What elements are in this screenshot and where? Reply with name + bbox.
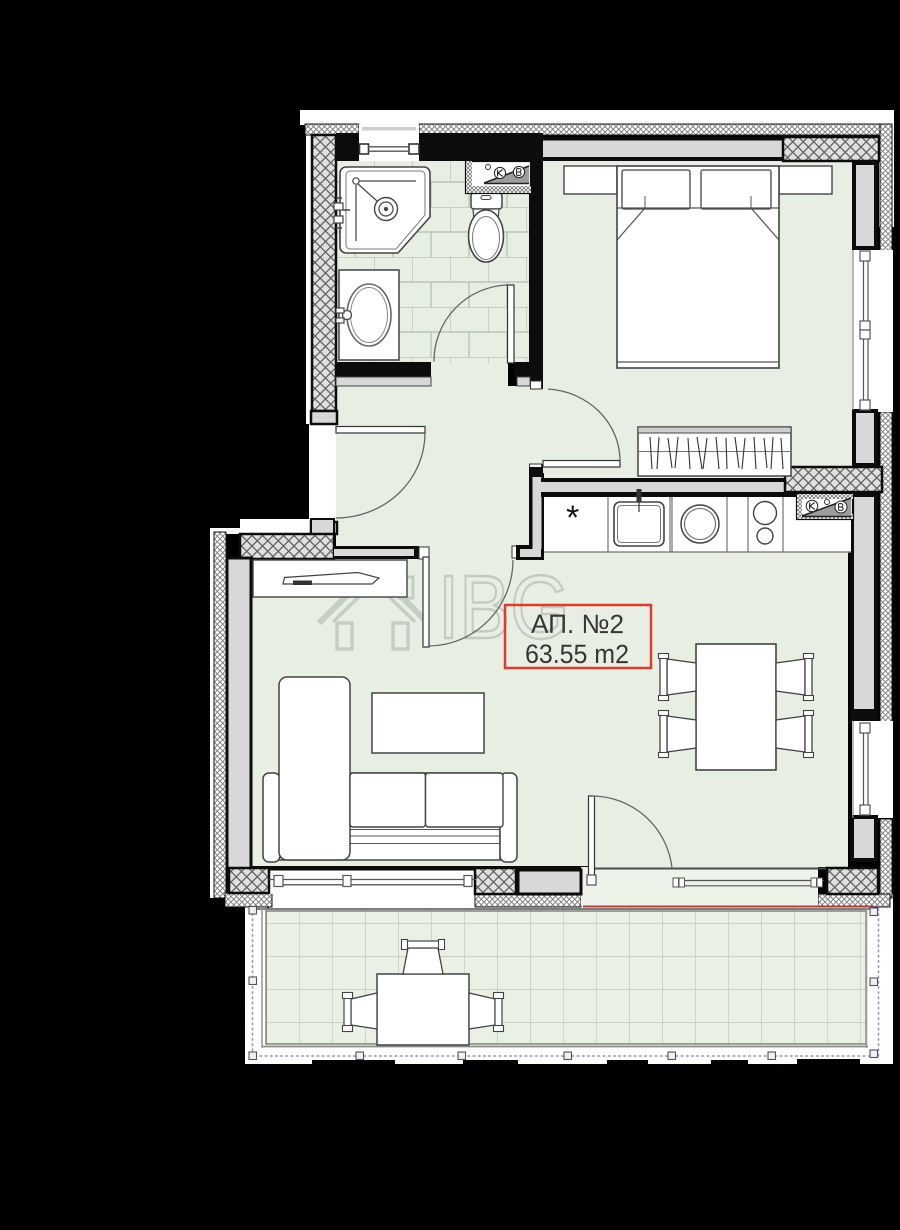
svg-text:63.55 m2: 63.55 m2: [525, 639, 629, 669]
svg-text:АП. №2: АП. №2: [531, 609, 624, 639]
svg-text:*: *: [566, 499, 579, 537]
